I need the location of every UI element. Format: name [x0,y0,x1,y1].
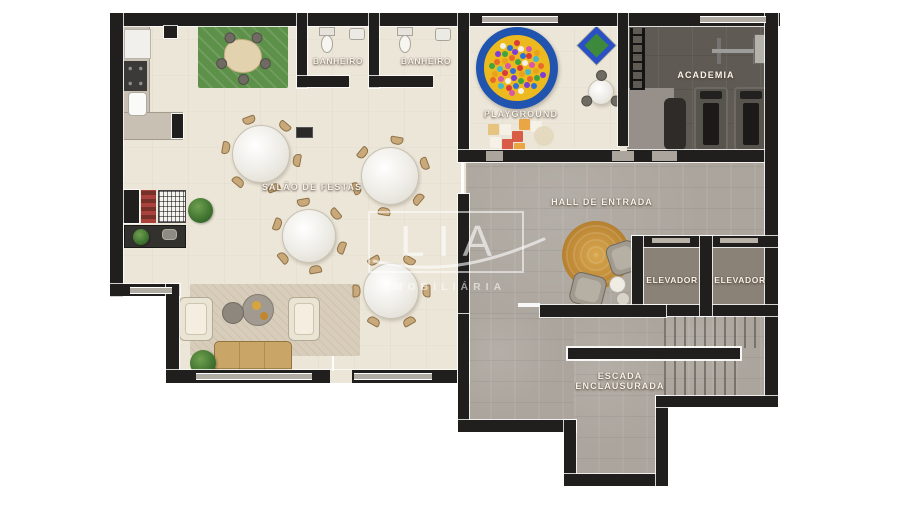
counter-end-wall [172,114,183,138]
wall [458,420,576,432]
ball [518,88,524,94]
window [354,373,432,380]
grill-firebox [122,190,139,223]
ball [515,59,521,65]
play-circle [534,126,554,146]
decor-dish [252,301,261,310]
ball [533,68,539,74]
ball [509,90,515,96]
side-speaker [296,127,313,138]
wall [458,13,469,150]
gym-wall-ladder [630,28,645,90]
hopscotch-tile [488,124,499,135]
coffee-table-large [242,294,274,326]
window [130,287,172,294]
ball [500,43,506,49]
bathroom-sink [349,28,365,40]
ball [495,51,501,57]
room-label-elevador: ELEVADOR [714,275,765,285]
treadmill [734,87,768,151]
door-leaf [461,162,464,194]
grill-sink [162,229,177,240]
treadmill [694,87,728,151]
toilet-bowl [399,35,411,53]
room-label-banheiro: BANHEIRO [313,56,363,66]
hall-side-table [616,292,630,306]
ball [527,76,533,82]
hopscotch-tile [519,119,530,130]
hopscotch-tile [490,137,501,148]
ball [507,45,513,51]
kids-clover-table [224,39,262,73]
door-leaf [332,356,334,371]
ball [534,75,540,81]
armchair [288,297,320,341]
wall [632,236,643,316]
stove-cooktop [124,61,147,91]
plant-grill [188,198,213,223]
stair-treads-upper [664,316,768,348]
ball [534,50,540,56]
ball [510,68,516,74]
stair-treads-lower [664,360,740,396]
ball [502,58,508,64]
room-label-academia: ACADEMIA [677,70,734,80]
ball [490,77,496,83]
dining-table [361,147,419,205]
ball [529,62,535,68]
escada-floor-left [466,314,574,424]
door-opening [349,78,368,86]
window [196,373,312,380]
ball [540,72,546,78]
door-opening [612,151,634,161]
elevator-door [652,238,690,243]
hopscotch-tile [512,131,523,142]
dining-table [232,125,290,183]
ball [525,69,531,75]
ball [489,63,495,69]
floor-plan: SALÃO DE FESTAS BANHEIRO BANHEIRO PLAYGR… [0,0,900,505]
ball [524,82,530,88]
ball [533,56,539,62]
ball [531,83,537,89]
kitchen-sink [128,92,147,116]
ball [494,59,500,65]
stair-railing-wall [568,348,740,359]
ball [512,49,518,55]
room-label-playground: PLAYGROUND [484,109,558,119]
wall [540,305,666,317]
room-label-hall: HALL DE ENTRADA [551,197,653,207]
wall [564,474,668,486]
coffee-table-small [222,302,244,324]
ball-pit [476,27,558,109]
gym-bench [664,98,686,150]
room-label-escada: ESCADA ENCLAUSURADA [575,371,664,391]
wall [297,76,349,87]
escada-floor-mid [574,314,664,480]
ball [497,66,503,72]
dining-table [282,209,336,263]
room-label-elevador: ELEVADOR [646,275,697,285]
wall [765,13,778,406]
ball [509,55,515,61]
door-opening [486,151,503,161]
hopscotch-tile [500,124,511,135]
ball [526,46,532,52]
door-frame-stub [164,26,177,38]
room-label-salao: SALÃO DE FESTAS [262,182,362,192]
plant-counter [133,229,149,245]
ball [502,51,508,57]
chair [422,285,430,298]
door-opening [433,78,455,86]
wall [110,13,123,297]
ball [498,76,504,82]
wall [458,314,469,432]
door-opening [330,370,352,383]
toilet-bowl [321,35,333,53]
ball [511,75,517,81]
wall [656,396,668,486]
ball [538,63,544,69]
elevator-door [720,238,758,243]
wall [656,396,778,407]
ball [526,53,532,59]
bathroom-sink [435,28,451,41]
ball [502,70,508,76]
ball [498,83,504,89]
window [700,16,766,23]
room-label-banheiro: BANHEIRO [401,56,451,66]
grill-firewood [141,190,156,223]
hall-side-table [609,276,626,293]
ball [518,46,524,52]
ball [519,71,525,77]
wall [700,236,712,316]
armchair [179,297,213,341]
door-leaf [518,303,540,307]
ball [492,71,498,77]
kids-round-table [588,79,614,105]
chair [352,285,360,298]
dining-table [363,263,419,319]
ball [505,78,511,84]
decor-dish [260,312,268,320]
hopscotch-tile [502,139,513,150]
ball [520,53,526,59]
fridge [124,29,151,59]
wall [369,76,433,87]
stool [238,74,249,85]
stool [596,70,607,81]
door-opening [620,146,627,151]
door-opening [652,151,677,161]
ball [522,60,528,66]
wall [618,13,628,146]
wall [166,284,179,382]
window [482,16,558,23]
grill-grate [158,190,186,223]
wall [110,13,780,26]
